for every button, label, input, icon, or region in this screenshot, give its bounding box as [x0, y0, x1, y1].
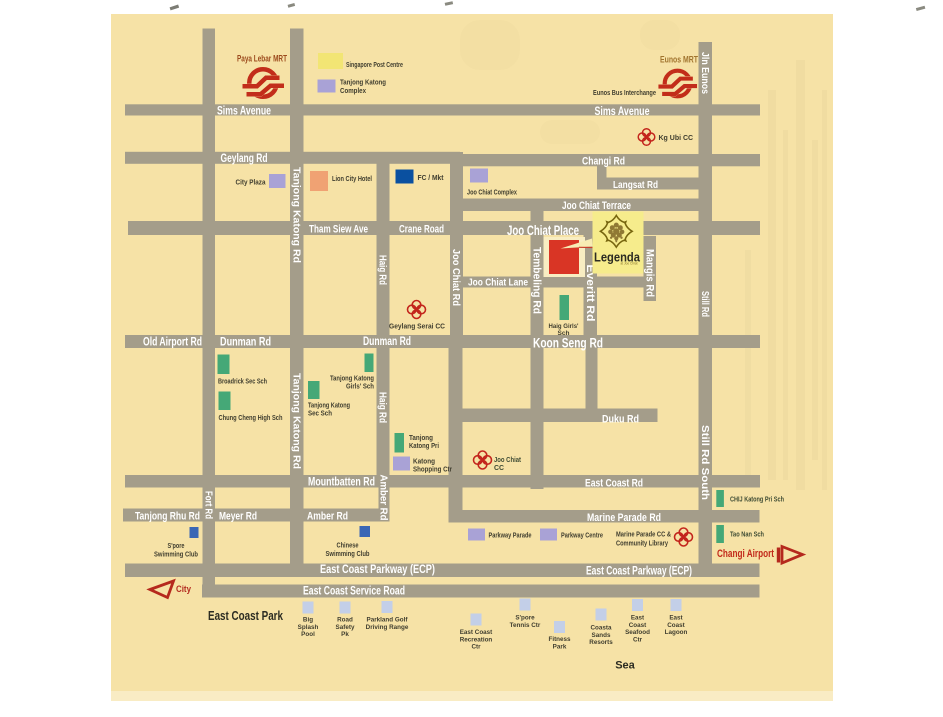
- svg-text:Crane Road: Crane Road: [399, 224, 444, 236]
- svg-text:Lion City Hotel: Lion City Hotel: [332, 176, 372, 183]
- svg-text:Old Airport Rd: Old Airport Rd: [143, 337, 202, 349]
- svg-text:City: City: [176, 584, 191, 594]
- svg-text:Complex: Complex: [340, 88, 366, 95]
- svg-text:Dunman Rd: Dunman Rd: [220, 337, 271, 349]
- svg-text:Singapore Post Centre: Singapore Post Centre: [346, 62, 403, 69]
- svg-text:East Coast Park: East Coast Park: [208, 609, 283, 623]
- svg-text:Katong Pri: Katong Pri: [409, 443, 439, 450]
- svg-text:Tham Siew Ave: Tham Siew Ave: [309, 224, 368, 236]
- svg-text:Tanjong Katong Rd: Tanjong Katong Rd: [291, 167, 303, 263]
- svg-text:Haig Rd: Haig Rd: [377, 255, 388, 285]
- svg-text:Tanjong Rhu Rd: Tanjong Rhu Rd: [135, 511, 200, 523]
- svg-text:Still Rd South: Still Rd South: [699, 425, 711, 500]
- svg-text:CC: CC: [494, 463, 505, 472]
- svg-text:Swimming Club: Swimming Club: [326, 551, 370, 558]
- svg-text:East Coast Service Road: East Coast Service Road: [303, 586, 405, 598]
- svg-text:East Coast Parkway (ECP): East Coast Parkway (ECP): [586, 566, 692, 578]
- svg-text:Changi Airport: Changi Airport: [717, 548, 774, 560]
- svg-text:Haig Rd: Haig Rd: [377, 392, 388, 423]
- svg-text:Meyer Rd: Meyer Rd: [219, 511, 257, 523]
- svg-text:Koon Seng Rd: Koon Seng Rd: [533, 336, 603, 351]
- svg-text:Kg Ubi CC: Kg Ubi CC: [659, 135, 694, 142]
- svg-text:Chinese: Chinese: [337, 543, 359, 550]
- svg-text:Duku Rd: Duku Rd: [602, 414, 639, 426]
- svg-text:Eunos Bus Interchange: Eunos Bus Interchange: [593, 90, 656, 97]
- svg-text:Community Library: Community Library: [616, 541, 668, 548]
- svg-text:Sea: Sea: [615, 660, 635, 672]
- svg-text:Marine Parade Rd: Marine Parade Rd: [587, 512, 661, 524]
- svg-text:Parkway Centre: Parkway Centre: [561, 533, 603, 540]
- svg-text:S'pore: S'pore: [168, 543, 185, 550]
- svg-text:Joo Chiat Terrace: Joo Chiat Terrace: [562, 200, 631, 212]
- svg-text:Parkway Parade: Parkway Parade: [489, 533, 532, 540]
- svg-text:Geylang Rd: Geylang Rd: [221, 153, 268, 165]
- svg-text:Eunos MRT: Eunos MRT: [660, 55, 698, 66]
- svg-text:Tembeling Rd: Tembeling Rd: [531, 247, 543, 314]
- svg-text:at Joo Chiat: at Joo Chiat: [620, 262, 637, 266]
- svg-text:Joo Chiat Place: Joo Chiat Place: [507, 223, 579, 238]
- svg-text:CoastaSandsResorts: CoastaSandsResorts: [589, 625, 613, 647]
- svg-text:Chung Cheng High Sch: Chung Cheng High Sch: [219, 415, 283, 422]
- svg-text:Girls' Sch: Girls' Sch: [346, 384, 374, 391]
- svg-text:Dunman Rd: Dunman Rd: [363, 336, 411, 348]
- svg-text:Katong: Katong: [413, 459, 435, 466]
- svg-text:Shopping Ctr: Shopping Ctr: [413, 467, 452, 474]
- svg-text:Changi Rd: Changi Rd: [582, 156, 625, 168]
- svg-text:Paya Lebar MRT: Paya Lebar MRT: [237, 54, 287, 65]
- svg-text:Tanjong: Tanjong: [409, 435, 433, 442]
- svg-text:Sims Avenue: Sims Avenue: [217, 106, 271, 118]
- svg-text:Mountbatten Rd: Mountbatten Rd: [308, 477, 375, 489]
- svg-text:East Coast Rd: East Coast Rd: [585, 478, 643, 490]
- svg-text:Fort Rd: Fort Rd: [203, 491, 214, 519]
- svg-text:Joo Chiat Rd: Joo Chiat Rd: [450, 249, 462, 306]
- svg-text:East Coast Parkway (ECP): East Coast Parkway (ECP): [320, 564, 435, 576]
- svg-text:Parkland GolfDriving Range: Parkland GolfDriving Range: [366, 617, 409, 631]
- svg-text:Still Rd: Still Rd: [699, 291, 711, 317]
- svg-text:Jln Eunos: Jln Eunos: [699, 52, 711, 94]
- svg-text:FC / Mkt: FC / Mkt: [418, 175, 445, 182]
- svg-text:Amber Rd: Amber Rd: [378, 475, 389, 521]
- svg-text:Joo Chiat Lane: Joo Chiat Lane: [468, 277, 528, 289]
- svg-text:Tanjong Katong: Tanjong Katong: [308, 403, 350, 410]
- svg-text:Swimming Club: Swimming Club: [154, 552, 198, 559]
- svg-text:Tanjong Katong: Tanjong Katong: [330, 376, 374, 383]
- svg-text:Sims Avenue: Sims Avenue: [595, 106, 650, 118]
- svg-text:Broadrick Sec Sch: Broadrick Sec Sch: [218, 379, 267, 386]
- svg-text:City Plaza: City Plaza: [236, 180, 266, 187]
- svg-text:CHIJ Katong Pri Sch: CHIJ Katong Pri Sch: [730, 497, 784, 504]
- svg-text:Tao Nan Sch: Tao Nan Sch: [730, 532, 764, 539]
- svg-text:Amber Rd: Amber Rd: [307, 511, 348, 523]
- svg-text:Tanjong Katong Rd: Tanjong Katong Rd: [291, 373, 303, 469]
- svg-text:Joo Chiat Complex: Joo Chiat Complex: [467, 190, 517, 197]
- svg-text:Sec Sch: Sec Sch: [308, 411, 332, 418]
- svg-text:Sch: Sch: [558, 330, 570, 337]
- svg-text:Mangis Rd: Mangis Rd: [644, 249, 656, 297]
- svg-text:Marine Parade CC &: Marine Parade CC &: [616, 532, 671, 539]
- svg-text:Langsat Rd: Langsat Rd: [613, 179, 658, 191]
- svg-text:Tanjong Katong: Tanjong Katong: [340, 80, 386, 87]
- svg-text:Geylang Serai CC: Geylang Serai CC: [389, 324, 445, 331]
